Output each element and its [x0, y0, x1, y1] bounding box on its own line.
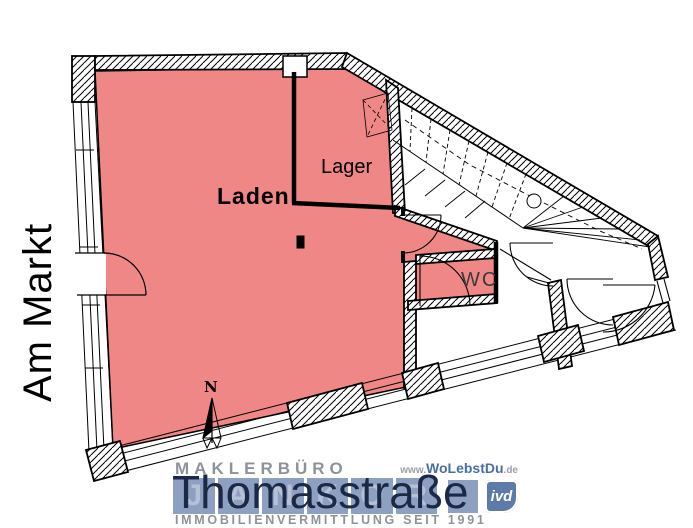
floor-plan-drawing	[0, 0, 693, 528]
wall-corner-top-left	[72, 56, 95, 102]
wall-top	[95, 53, 351, 70]
north-letter: N	[204, 380, 218, 395]
room-label-wc: WC	[461, 270, 498, 290]
ivd-badge: ivd	[485, 480, 518, 513]
wall-right-corner	[648, 236, 668, 280]
pier-bottom-3	[538, 325, 584, 362]
room-label-laden: Laden	[217, 185, 290, 208]
street-label-am-markt: Am Markt	[16, 222, 61, 402]
pier-bottom-right	[613, 302, 674, 345]
floorplan-page: Laden Lager WC N Am Markt MAKLERBÜRO J A…	[0, 0, 693, 528]
column-marker	[297, 236, 304, 248]
stair-newel-circle	[527, 194, 541, 208]
website-prefix: www.	[400, 465, 426, 476]
website-suffix: .de	[504, 465, 518, 476]
watermark-website: www.WoLebstDu.de	[398, 461, 518, 476]
watermark-immobilien-line: IMMOBILIENVERMITTLUNG SEIT 1991	[175, 514, 487, 527]
room-label-lager: Lager	[321, 157, 372, 177]
pier-bottom-left-corner	[86, 441, 128, 481]
website-name: WoLebstDu	[426, 460, 504, 476]
